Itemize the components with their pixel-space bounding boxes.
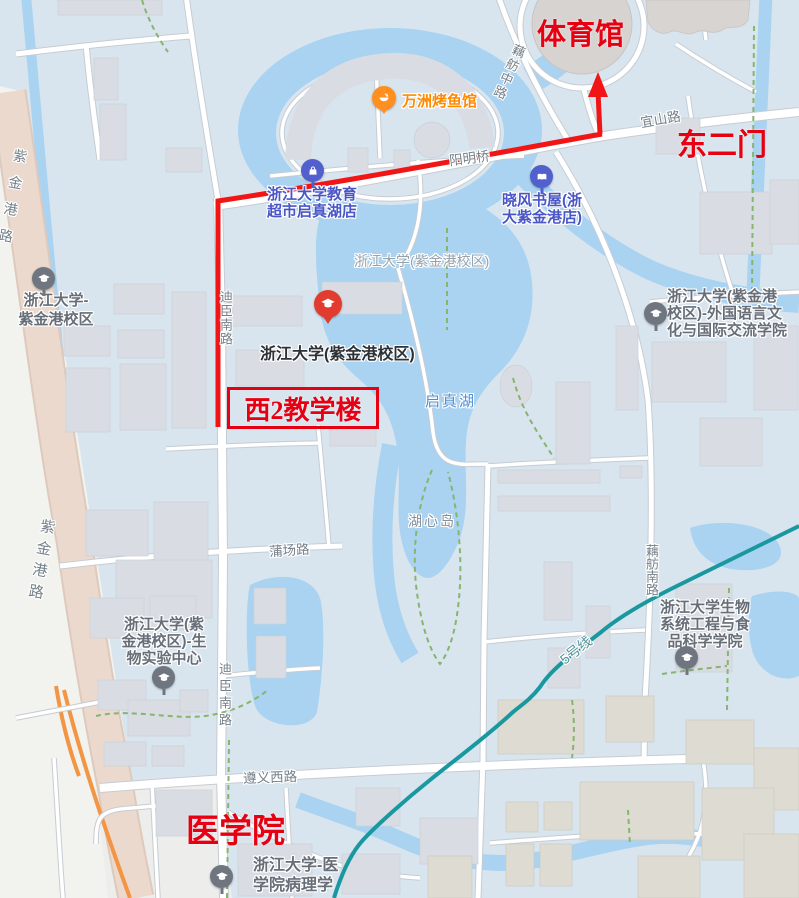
graduation-cap-icon[interactable] xyxy=(32,267,55,290)
poi-zju-campus-west-line2: 紫金港校区 xyxy=(12,310,100,329)
poi-bfs-line1: 浙江大学生物 xyxy=(643,599,767,616)
annotation-teaching-building-box: 西2教学楼 xyxy=(227,387,379,429)
road-label-oufang-south-road: 藕舫南路 xyxy=(642,544,661,596)
poi-zju-main-label[interactable]: 浙江大学(紫金港校区) xyxy=(260,340,415,364)
poi-blc-line3: 物实验中心 xyxy=(110,650,218,667)
poi-bookstore-label[interactable]: 晓风书屋(浙 大紫金港店) xyxy=(496,192,588,226)
poi-blc-line2: 金港校区)-生 xyxy=(110,633,218,650)
poi-bfs-line2: 系统工程与食 xyxy=(643,616,767,633)
graduation-cap-icon[interactable] xyxy=(210,865,233,888)
poi-path-line2: 学院病理学 xyxy=(253,876,338,896)
poi-grill-restaurant-label[interactable]: 万洲烤鱼馆 xyxy=(402,90,477,111)
shopping-bag-icon[interactable] xyxy=(301,159,324,182)
poi-blc-line1: 浙江大学(紫 xyxy=(110,616,218,633)
poi-bio-food-school-label[interactable]: 浙江大学生物 系统工程与食 品科学学院 xyxy=(643,599,767,650)
area-label-campus: 浙江大学(紫金港校区) xyxy=(354,251,489,271)
poi-zju-campus-west-line1: 浙江大学- xyxy=(12,291,100,310)
annotation-teaching-building: 西2教学楼 xyxy=(244,390,361,427)
road-label-zunyi-west-road: 遵义西路 xyxy=(243,765,298,787)
poi-bfs-line3: 品科学学院 xyxy=(643,633,767,650)
poi-zju-campus-west-label[interactable]: 浙江大学- 紫金港校区 xyxy=(12,291,100,329)
poi-fls-line2: 校区)-外国语言文 xyxy=(667,305,787,322)
restaurant-bowl-icon[interactable] xyxy=(372,86,396,110)
graduation-cap-icon[interactable] xyxy=(152,666,175,689)
poi-edu-supermarket-line2: 超市启真湖店 xyxy=(266,203,358,220)
poi-bio-lab-center-label[interactable]: 浙江大学(紫 金港校区)-生 物实验中心 xyxy=(110,616,218,667)
book-icon[interactable] xyxy=(530,165,553,188)
graduation-cap-icon[interactable] xyxy=(644,302,667,325)
poi-fls-line3: 化与国际交流学院 xyxy=(667,322,787,339)
road-label-dichen-south-road-north: 迪臣南路 xyxy=(216,290,235,346)
annotation-east-gate: 东二门 xyxy=(677,120,767,164)
graduation-cap-icon[interactable] xyxy=(675,646,698,669)
poi-path-line1: 浙江大学-医 xyxy=(253,856,338,876)
map-canvas[interactable]: 紫金港路 紫金港路 迪臣南路 迪臣南路 藕舫中路 藕舫南路 宜山路 阳明桥 蒲场… xyxy=(0,0,799,898)
poi-bookstore-line2: 大紫金港店) xyxy=(496,209,588,226)
graduation-cap-icon[interactable] xyxy=(314,290,342,318)
annotation-medical-school: 医学院 xyxy=(186,804,285,852)
annotation-gym: 体育馆 xyxy=(537,11,624,53)
poi-bookstore-line1: 晓风书屋(浙 xyxy=(496,192,588,209)
area-label-qizhen-lake: 启真湖 xyxy=(425,390,476,411)
road-label-dichen-south-road-south: 迪臣南路 xyxy=(215,662,234,730)
poi-fls-line1: 浙江大学(紫金港 xyxy=(667,288,787,305)
poi-pathology-dept-label[interactable]: 浙江大学-医 学院病理学 xyxy=(253,856,338,896)
poi-foreign-language-school-label[interactable]: 浙江大学(紫金港 校区)-外国语言文 化与国际交流学院 xyxy=(667,288,787,339)
poi-edu-supermarket-label[interactable]: 浙江大学教育 超市启真湖店 xyxy=(266,186,358,220)
poi-edu-supermarket-line1: 浙江大学教育 xyxy=(266,186,358,203)
area-label-lake-island: 湖心岛 xyxy=(408,511,456,531)
road-label-puchang-road: 蒲场路 xyxy=(268,538,310,561)
